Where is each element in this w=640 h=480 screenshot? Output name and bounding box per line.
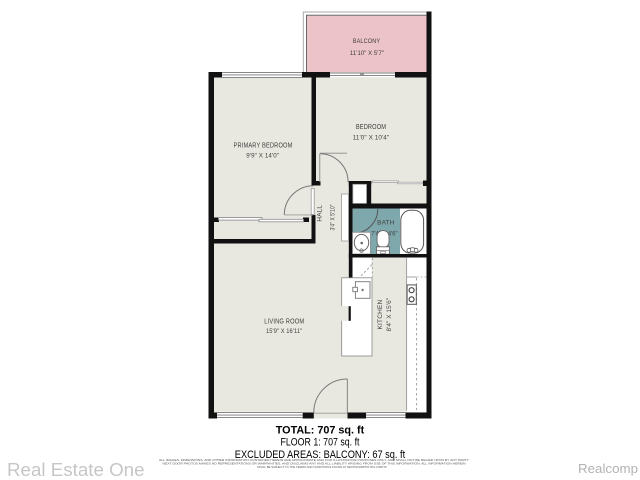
svg-text:11'0" X 10'4": 11'0" X 10'4" (353, 135, 390, 142)
svg-text:8'4" X 15'6": 8'4" X 15'6" (386, 297, 393, 331)
svg-text:11'10" X 5'7": 11'10" X 5'7" (350, 50, 385, 57)
svg-text:SHALL BE SUBJECT TO THE TERMS: SHALL BE SUBJECT TO THE TERMS AND CONDIT… (257, 465, 388, 469)
svg-text:BEDROOM: BEDROOM (356, 122, 386, 131)
svg-text:HALL: HALL (316, 205, 323, 222)
svg-text:BATH: BATH (377, 220, 395, 227)
svg-text:LIVING ROOM: LIVING ROOM (264, 316, 304, 325)
svg-text:FLOOR 1: 707 sq. ft: FLOOR 1: 707 sq. ft (281, 436, 360, 448)
svg-text:TOTAL: 707 sq. ft: TOTAL: 707 sq. ft (276, 425, 365, 437)
svg-text:15'9" X 16'11": 15'9" X 16'11" (266, 328, 303, 335)
svg-text:Realcomp: Realcomp (578, 462, 638, 476)
svg-text:3'4" X 5'10": 3'4" X 5'10" (329, 204, 336, 230)
svg-text:KITCHEN: KITCHEN (377, 299, 384, 329)
svg-text:Real Estate One: Real Estate One (7, 460, 145, 480)
svg-text:BALCONY: BALCONY (353, 38, 381, 45)
svg-text:PRIMARY BEDROOM: PRIMARY BEDROOM (234, 141, 293, 150)
svg-text:9'9" X 14'0": 9'9" X 14'0" (246, 153, 279, 160)
